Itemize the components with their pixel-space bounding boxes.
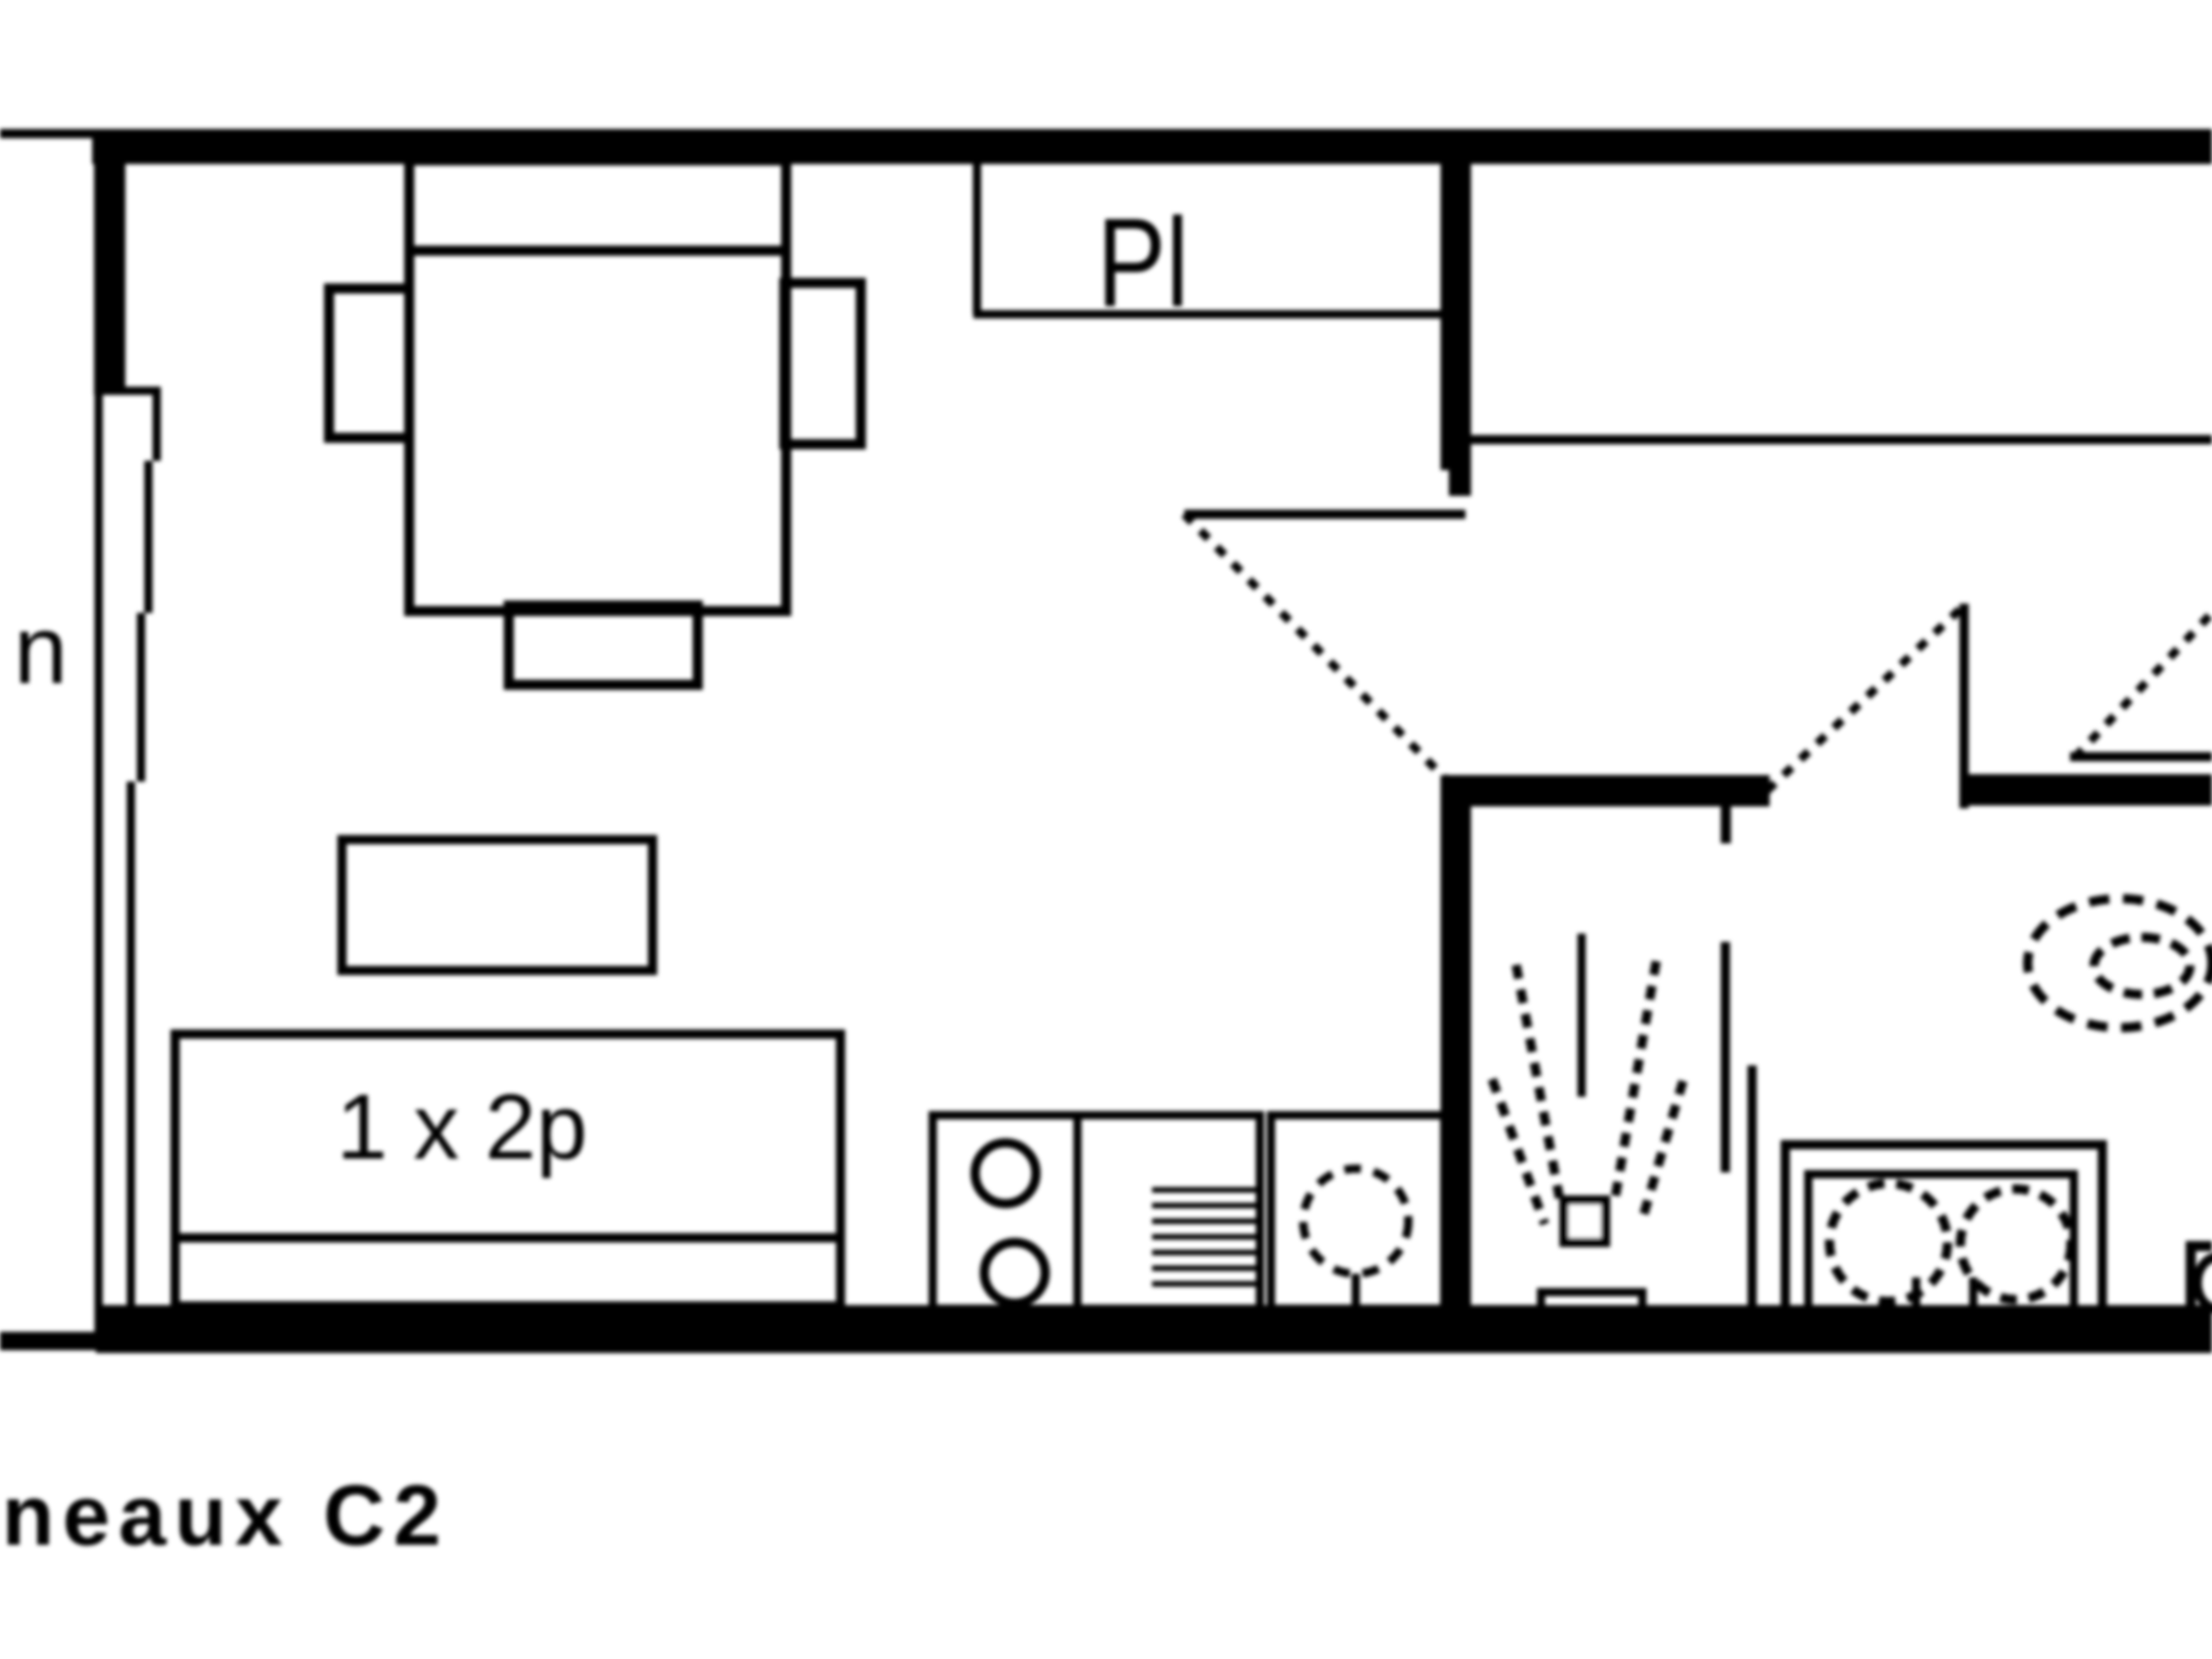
- svg-text:neaux C2: neaux C2: [2, 1467, 450, 1563]
- svg-text:Pl: Pl: [1097, 193, 1189, 334]
- svg-text:1 x 2p: 1 x 2p: [336, 1076, 587, 1179]
- svg-text:n: n: [14, 596, 67, 704]
